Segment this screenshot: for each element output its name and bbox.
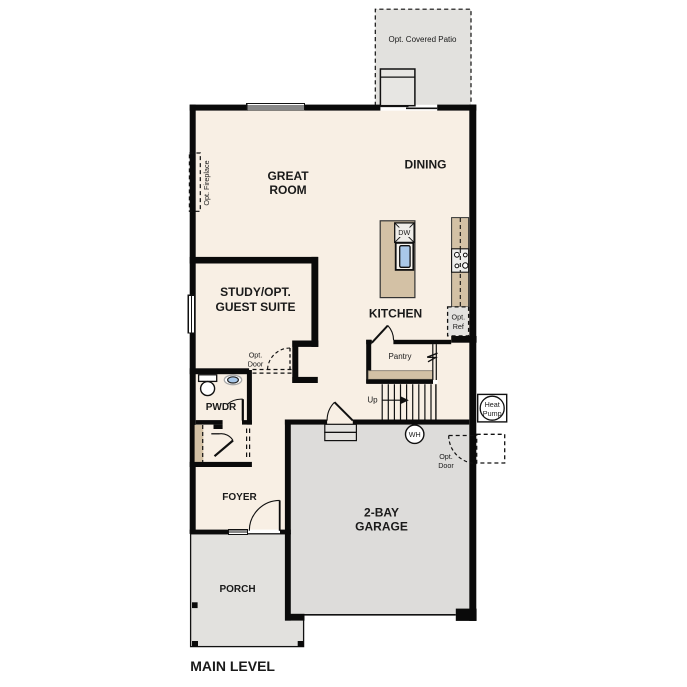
svg-text:GREAT: GREAT [267, 169, 309, 183]
svg-text:Door: Door [438, 461, 454, 470]
svg-text:Ref: Ref [453, 322, 464, 331]
svg-text:DINING: DINING [405, 158, 447, 172]
svg-text:Pump: Pump [483, 409, 502, 418]
svg-text:STUDY/OPT.: STUDY/OPT. [220, 285, 291, 299]
svg-text:Door: Door [248, 360, 264, 369]
svg-text:Up: Up [367, 396, 378, 405]
svg-text:Opt.: Opt. [452, 313, 466, 322]
svg-text:KITCHEN: KITCHEN [369, 307, 422, 321]
svg-text:GUEST SUITE: GUEST SUITE [215, 300, 295, 314]
svg-text:Opt. Fireplace: Opt. Fireplace [202, 160, 211, 205]
svg-text:Opt. Covered Patio: Opt. Covered Patio [388, 35, 457, 44]
svg-text:Opt.: Opt. [439, 452, 453, 461]
svg-text:MAIN LEVEL: MAIN LEVEL [190, 658, 275, 674]
svg-text:PWDR: PWDR [206, 402, 237, 413]
svg-text:Pantry: Pantry [388, 352, 411, 361]
svg-text:Opt.: Opt. [249, 351, 263, 360]
svg-text:DW: DW [398, 228, 410, 237]
svg-text:WH: WH [409, 430, 421, 439]
svg-text:FOYER: FOYER [222, 492, 257, 503]
svg-text:ROOM: ROOM [269, 183, 306, 197]
svg-text:2-BAY: 2-BAY [364, 506, 399, 520]
svg-text:PORCH: PORCH [219, 584, 255, 595]
svg-text:Heat: Heat [485, 400, 500, 409]
svg-text:GARAGE: GARAGE [355, 520, 408, 534]
